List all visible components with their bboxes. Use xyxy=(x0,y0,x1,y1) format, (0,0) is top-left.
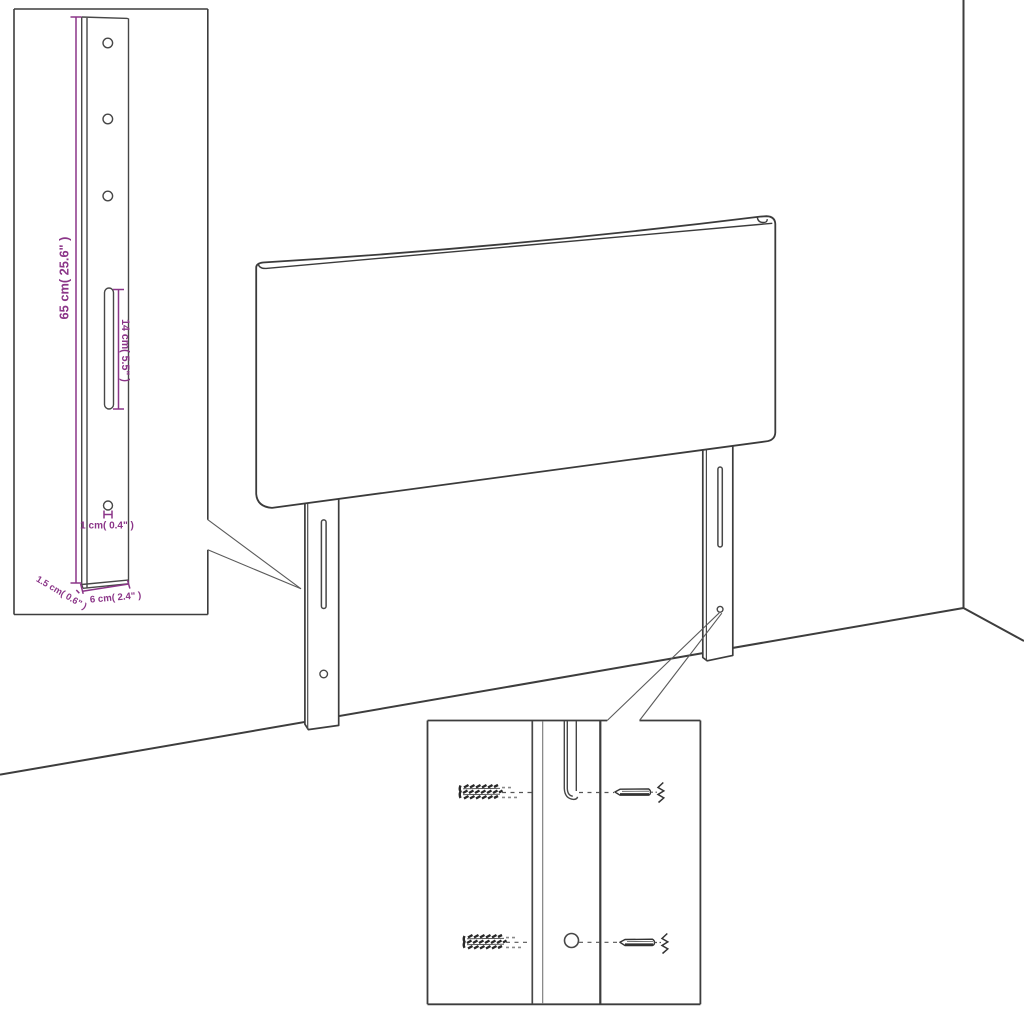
svg-text:14 cm( 5.5" ): 14 cm( 5.5" ) xyxy=(119,319,131,382)
svg-text:65 cm( 25.6" ): 65 cm( 25.6" ) xyxy=(57,237,72,320)
svg-text:1 cm( 0.4" ): 1 cm( 0.4" ) xyxy=(80,521,134,532)
